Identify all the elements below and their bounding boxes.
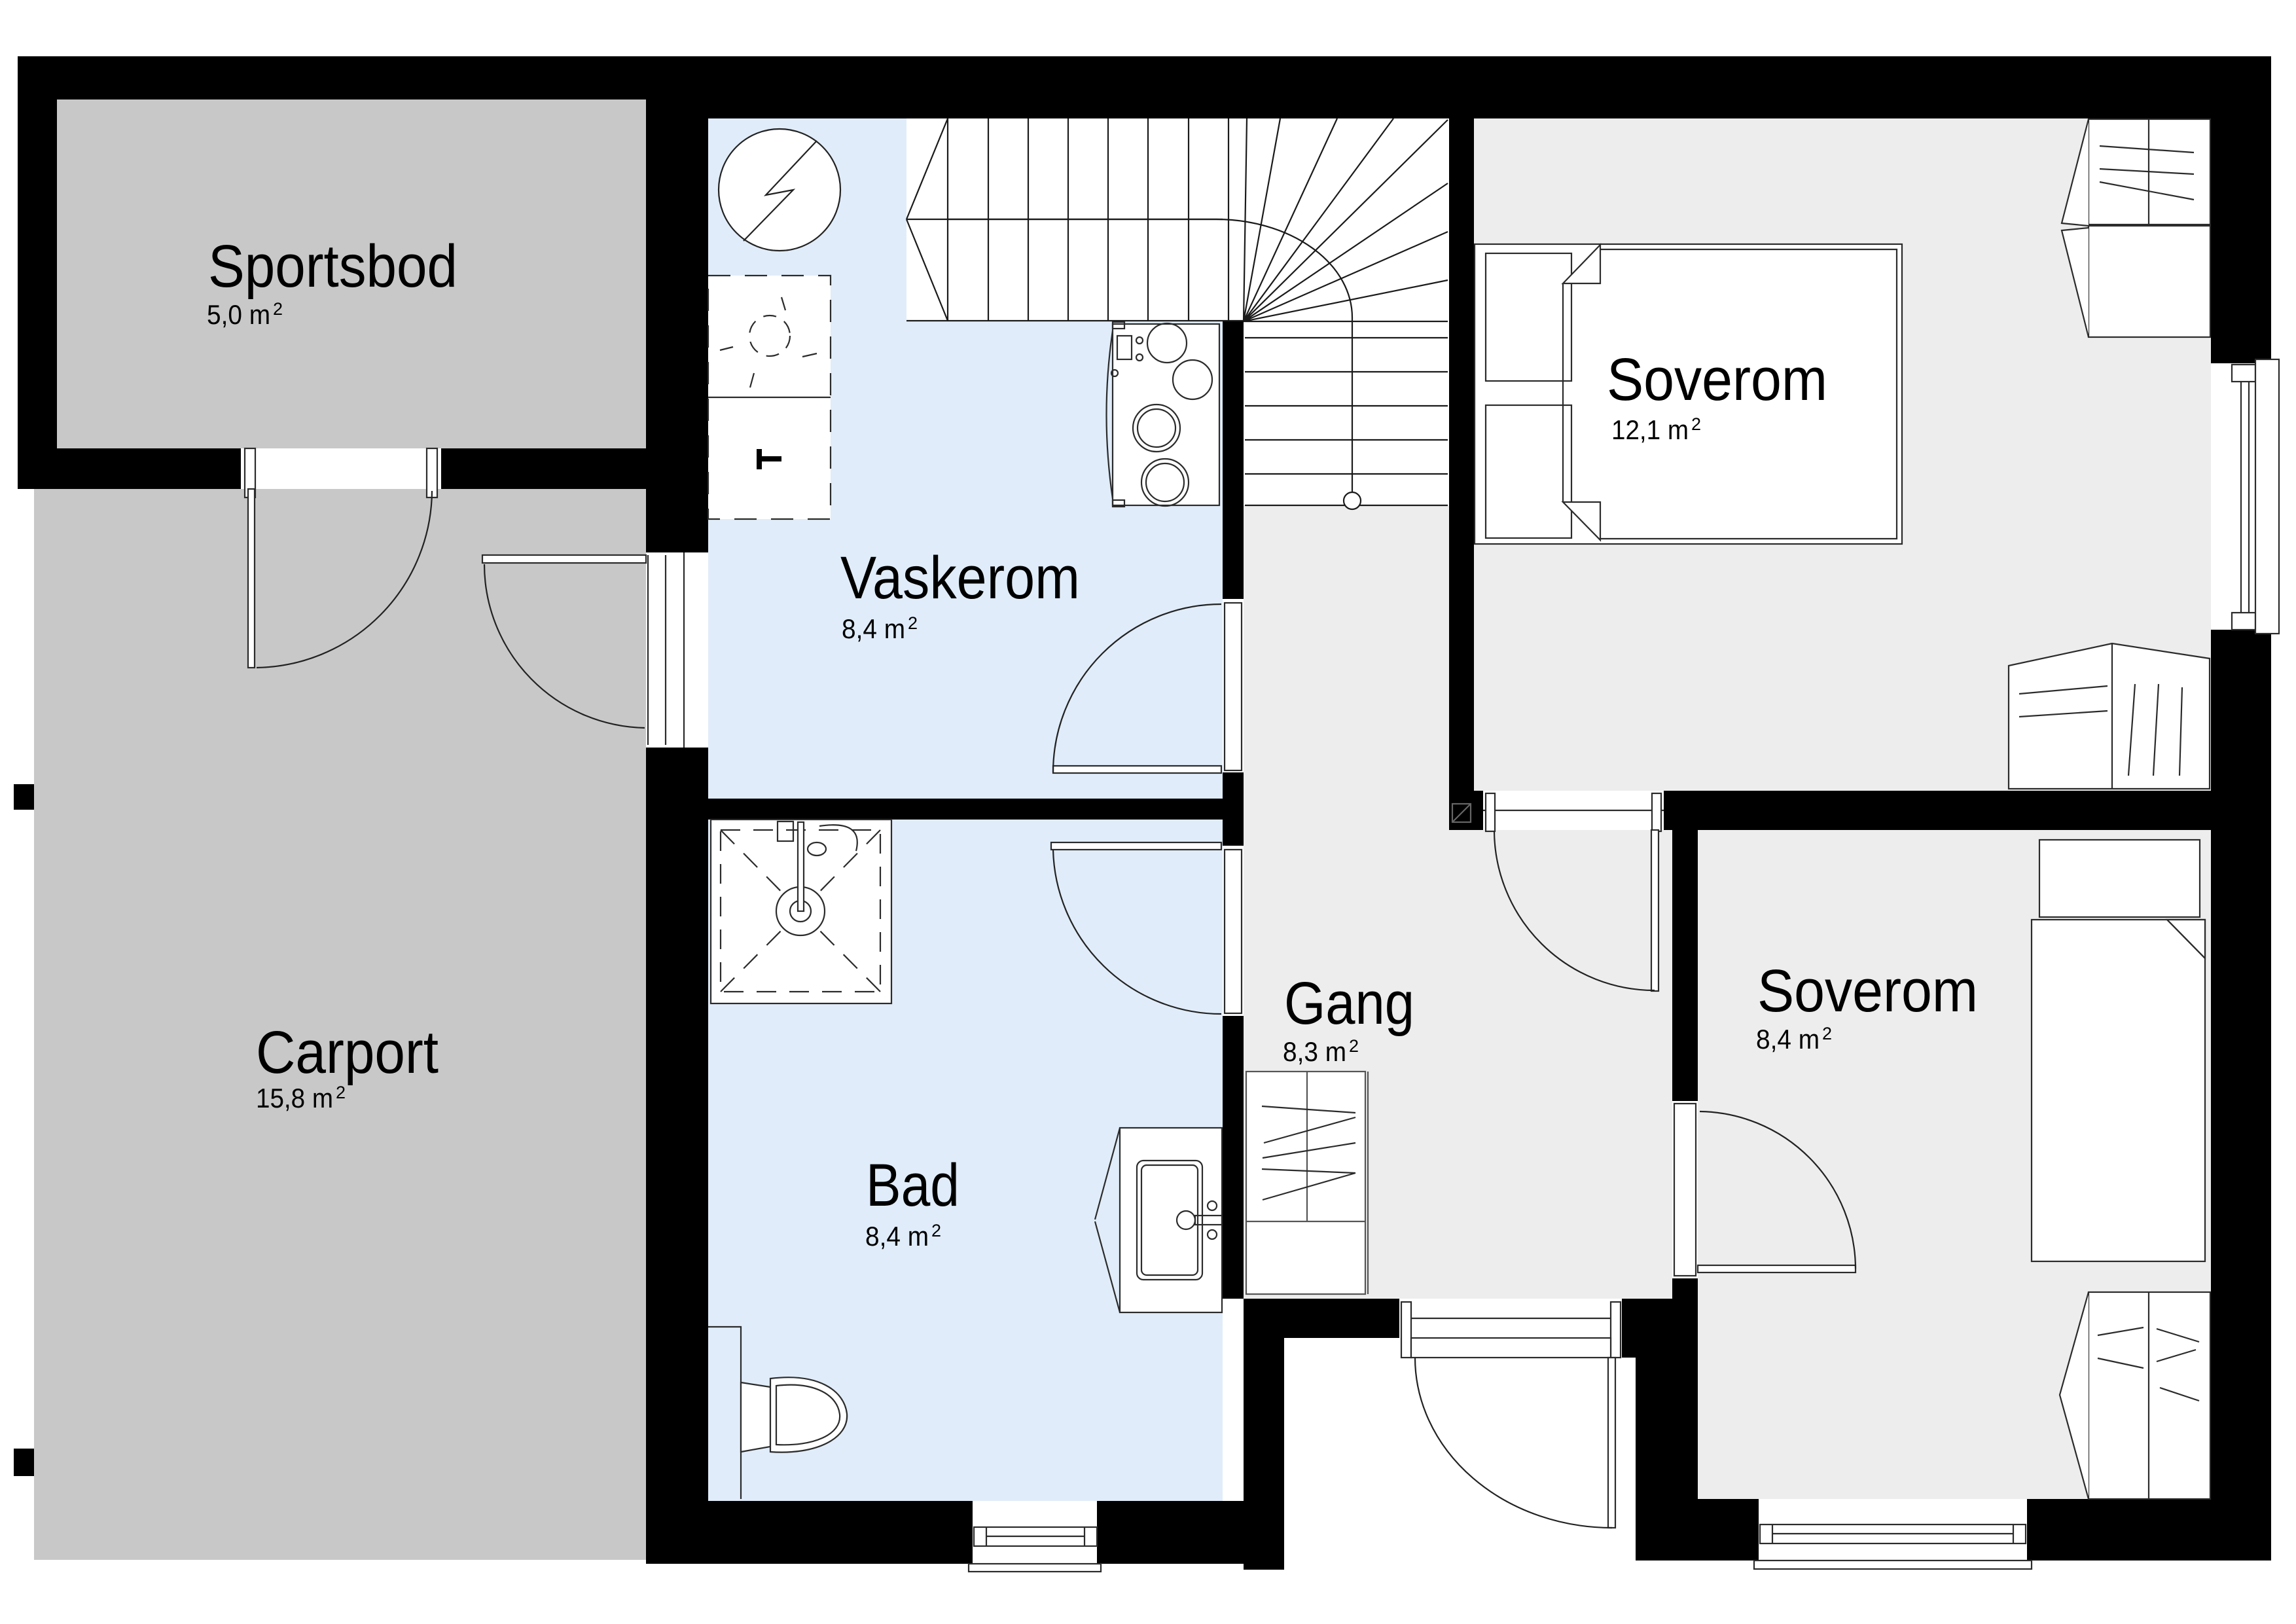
svg-text:Sportsbod: Sportsbod — [208, 233, 457, 300]
svg-text:Gang: Gang — [1284, 970, 1414, 1037]
svg-text:Vaskerom: Vaskerom — [840, 545, 1080, 611]
svg-text:2: 2 — [908, 613, 918, 633]
svg-text:15,8 m: 15,8 m — [256, 1083, 333, 1113]
svg-text:8,4 m: 8,4 m — [865, 1221, 929, 1252]
svg-text:Carport: Carport — [256, 1019, 439, 1086]
svg-text:8,4 m: 8,4 m — [1756, 1024, 1820, 1055]
svg-text:2: 2 — [336, 1083, 346, 1102]
svg-text:Bad: Bad — [866, 1152, 960, 1219]
svg-text:Soverom: Soverom — [1757, 958, 1978, 1024]
svg-text:2: 2 — [273, 299, 283, 319]
svg-text:2: 2 — [1822, 1024, 1832, 1043]
svg-text:8,3 m: 8,3 m — [1283, 1036, 1346, 1067]
svg-text:Soverom: Soverom — [1607, 346, 1827, 413]
svg-text:2: 2 — [1691, 414, 1701, 434]
svg-text:12,1 m: 12,1 m — [1611, 414, 1689, 445]
svg-text:5,0 m: 5,0 m — [207, 299, 270, 330]
svg-text:2: 2 — [1349, 1036, 1359, 1056]
svg-text:2: 2 — [931, 1221, 941, 1240]
svg-text:8,4 m: 8,4 m — [842, 613, 905, 644]
